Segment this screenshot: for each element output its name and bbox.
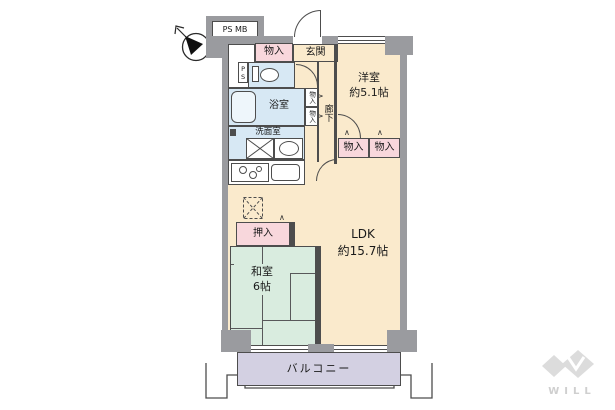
balcony: バルコニー [237,352,401,386]
floor-plan-canvas: PS MB 玄関 物入 PS 浴室 物入 物入 ∧ ∧ 廊下 洗面室 [0,0,615,410]
brand-logo-icon [536,348,608,382]
brand-logo: WILL [536,348,608,396]
balcony-railing-outline [0,0,615,410]
brand-logo-text: WILL [536,386,608,397]
